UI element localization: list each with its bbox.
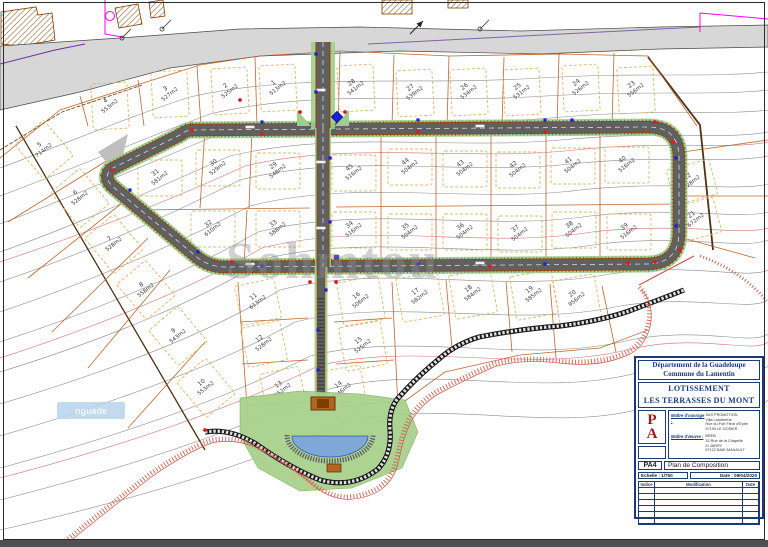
designer-address: BREB 32 Rue de la Chapelle ZI JARRY 9712… <box>705 434 757 452</box>
catch-basin-icon <box>314 90 317 93</box>
catch-basin-icon <box>674 156 677 159</box>
parcel-label: 15525m2 <box>349 332 373 355</box>
catch-basin-icon <box>260 120 263 123</box>
hydrant-icon <box>671 140 675 144</box>
catch-basin-icon <box>674 224 677 227</box>
parcel-label: 1513m2 <box>264 74 288 97</box>
designer-label: Maître d'œuvre : <box>671 434 705 452</box>
hydrant-icon <box>238 98 242 102</box>
sheet-bottom-edge <box>0 540 768 547</box>
parcel-label: 24526m2 <box>567 74 591 97</box>
parcel-label: 2525m2 <box>216 77 240 100</box>
client-address: SAS PROMOTION Villa Lamberthe Rue du For… <box>705 413 757 431</box>
hydrant-icon <box>653 260 657 264</box>
parcel-label: 45516m2 <box>340 159 364 182</box>
catch-basin-icon <box>316 368 319 371</box>
parcel-label: 44504m2 <box>396 153 420 176</box>
plan-sheet: 1513m22525m23527m24553m25714m26528m27528… <box>0 0 768 547</box>
parcel-label: 19585m2 <box>520 281 544 304</box>
logo-letter-a: A <box>647 427 658 441</box>
hydrant-icon <box>488 264 492 268</box>
hydrant-icon <box>298 110 302 114</box>
catch-basin-icon <box>128 188 131 191</box>
catch-basin-icon <box>314 52 317 55</box>
project-title-line1: LOTISSEMENT <box>639 383 759 395</box>
catch-basin-icon <box>416 118 419 121</box>
hydrant-icon <box>343 110 347 114</box>
stakeholders-box: Maître d'ouvrage : SAS PROMOTION Villa L… <box>668 410 760 459</box>
parcel-label: 6528m2 <box>66 184 90 207</box>
road-label-chip <box>476 262 485 265</box>
doc-code: PA4 <box>638 461 662 470</box>
date-label: Date : 09/04/2020 <box>690 472 760 479</box>
revision-table: Indice Modification Date <box>638 481 760 525</box>
hydrant-icon <box>543 130 547 134</box>
hydrant-icon <box>626 261 630 265</box>
hydrant-icon <box>653 120 657 124</box>
road-label-chip <box>317 227 326 230</box>
parcel-label: 20956m2 <box>563 285 587 308</box>
parcel-label: 41504m2 <box>559 152 583 175</box>
commune-title: Commune du Lamentin <box>639 370 759 379</box>
empty-box <box>638 446 666 459</box>
project-title-line2: LES TERRASSES DU MONT <box>639 395 759 407</box>
doc-title: Plan de Composition <box>664 461 760 470</box>
parcel-label: 7528m2 <box>100 230 124 253</box>
existing-road <box>0 25 768 110</box>
hydrant-icon <box>190 128 194 132</box>
parcel-label: 23556m2 <box>622 76 646 99</box>
parcel-label: 18584m2 <box>459 280 483 303</box>
client-label: Maître d'ouvrage : <box>671 413 705 431</box>
catch-basin-icon <box>543 118 546 121</box>
parcel-label: 10553m2 <box>192 374 216 397</box>
parcel-label: 11613m2 <box>244 288 268 311</box>
parcel-label: 3527m2 <box>156 80 180 103</box>
parcel-label: 43504m2 <box>451 155 475 178</box>
pa-logo: P A <box>638 410 666 444</box>
road-label-chip <box>246 126 255 129</box>
catch-basin-icon <box>196 250 199 253</box>
hydrant-icon <box>678 248 682 252</box>
road-label-chip <box>476 125 485 128</box>
logo-letter-p: P <box>647 413 656 427</box>
hydrant-icon <box>416 130 420 134</box>
parcel-label: 4553m2 <box>96 92 120 115</box>
hydrant-icon <box>203 428 207 432</box>
catch-basin-icon <box>328 156 331 159</box>
road-label-chip <box>317 161 326 164</box>
watermark-text: Sohmtou <box>226 232 439 291</box>
parcel-label: 40516m2 <box>613 151 637 174</box>
parcel-label: 32610m2 <box>199 215 223 238</box>
parcel-label: 26534m2 <box>455 78 479 101</box>
scale-label: Echelle : 1/750 <box>638 472 688 479</box>
parcel-label: 31581m2 <box>146 164 170 187</box>
road-label-chip <box>659 191 668 194</box>
road-label-chip <box>317 89 326 92</box>
catch-basin-icon <box>316 328 319 331</box>
catch-basin-icon <box>328 220 331 223</box>
title-block: Département de la Guadeloupe Commune du … <box>634 356 764 519</box>
hydrant-icon <box>260 132 264 136</box>
parcel-label: 29548m2 <box>264 157 288 180</box>
hydrant-icon <box>110 168 114 172</box>
parcel-label: 8558m2 <box>132 276 156 299</box>
catch-basin-icon <box>543 262 546 265</box>
catch-basin-icon <box>570 118 573 121</box>
parcel-label: 28541m2 <box>342 74 366 97</box>
parcel-label: 37504m2 <box>506 220 530 243</box>
parcel-label: 12528m2 <box>250 330 274 353</box>
roads <box>98 42 679 410</box>
parcel-label: 9543m2 <box>164 322 188 345</box>
department-title: Département de la Guadeloupe <box>639 361 759 370</box>
watermark-chip: nguade <box>57 402 125 419</box>
